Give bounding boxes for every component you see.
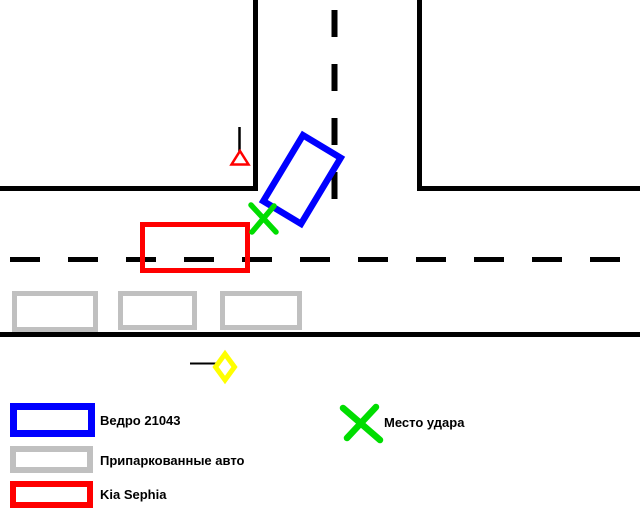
legend-swatch-kia — [10, 481, 93, 508]
vedro-21043-car — [263, 135, 340, 224]
left-building-outline — [0, 0, 256, 189]
legend-swatch-impact — [343, 407, 380, 440]
parked-car-3 — [223, 294, 300, 328]
main-road-diamond-sign — [216, 354, 235, 380]
legend-swatch-vedro — [10, 403, 95, 437]
parked-car-1 — [15, 294, 96, 330]
right-building-outline — [420, 0, 640, 189]
impact-x-mark — [251, 205, 276, 232]
parked-car-2 — [121, 294, 195, 328]
kia-sephia-car — [143, 225, 248, 271]
legend-label-vedro: Ведро 21043 — [100, 413, 181, 428]
scheme-canvas — [0, 0, 640, 512]
legend-label-parked: Припаркованные авто — [100, 453, 244, 468]
legend-swatch-parked — [10, 446, 93, 473]
yield-triangle-sign — [232, 151, 249, 165]
legend-label-kia: Kia Sephia — [100, 487, 166, 502]
legend-label-impact: Место удара — [384, 415, 464, 430]
accident-scheme: Ведро 21043 Припаркованные авто Kia Seph… — [0, 0, 640, 512]
